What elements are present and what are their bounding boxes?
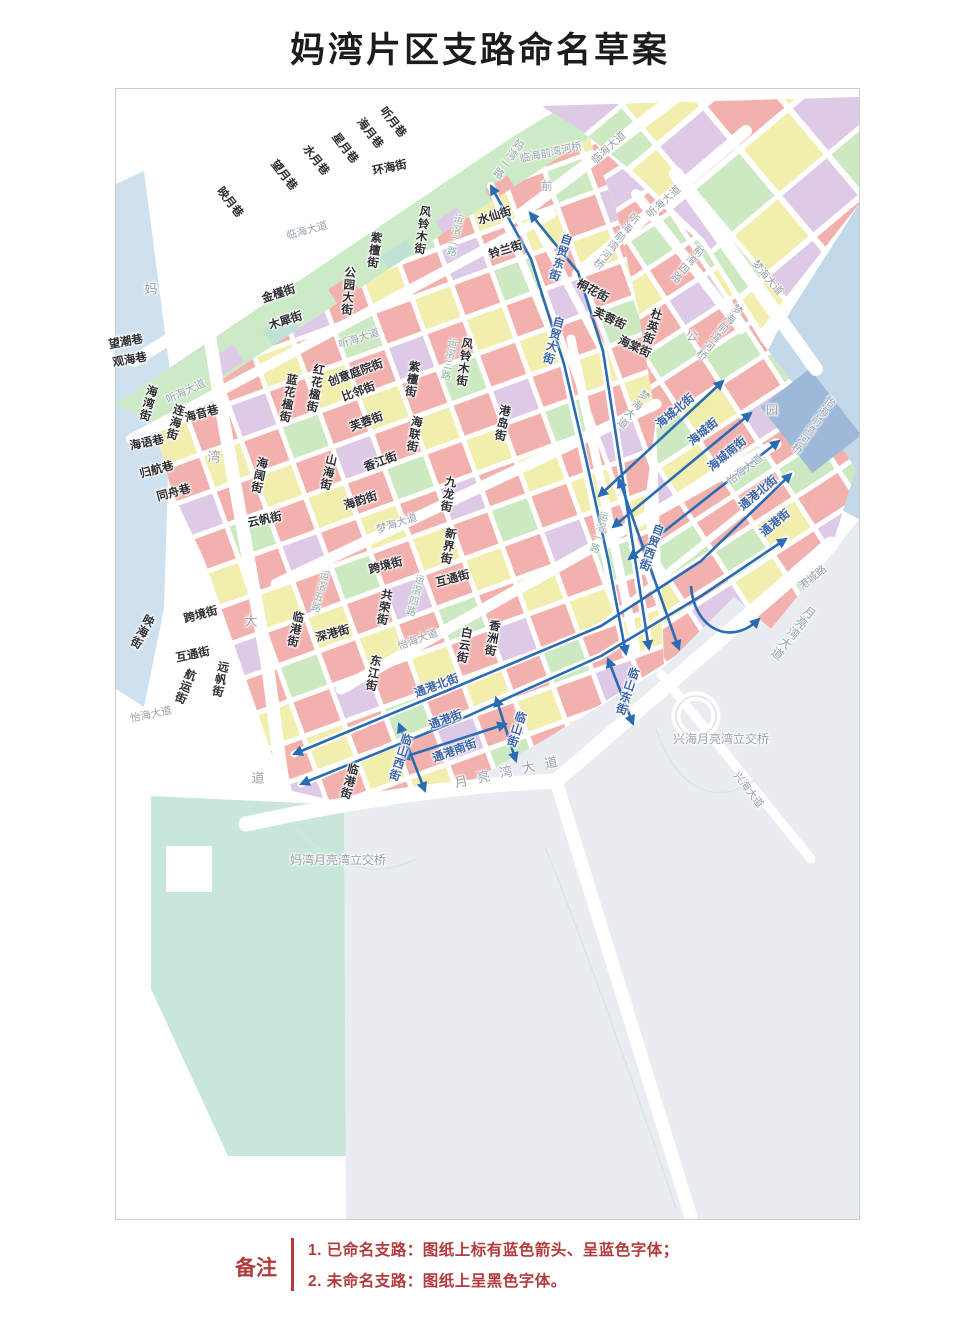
legend-heading: 备注 — [235, 1238, 291, 1291]
page-root: 妈湾片区支路命名草案 — [0, 0, 960, 1333]
legend-items: 1. 已命名支路：图纸上标有蓝色箭头、呈蓝色字体； 2. 未命名支路：图纸上呈黑… — [308, 1238, 679, 1291]
legend: 备注 1. 已命名支路：图纸上标有蓝色箭头、呈蓝色字体； 2. 未命名支路：图纸… — [235, 1238, 679, 1291]
page-title: 妈湾片区支路命名草案 — [0, 22, 960, 73]
map-base-svg — [116, 89, 859, 1219]
legend-item-unnamed: 2. 未命名支路：图纸上呈黑色字体。 — [308, 1269, 679, 1291]
map-frame: 映月巷望月巷水月巷星月巷海月巷听月巷环海街临海大道金槿街木犀街公园大街紫檀街风铃… — [115, 88, 860, 1220]
legend-divider — [291, 1238, 294, 1291]
legend-item-named: 1. 已命名支路：图纸上标有蓝色箭头、呈蓝色字体； — [308, 1238, 679, 1260]
